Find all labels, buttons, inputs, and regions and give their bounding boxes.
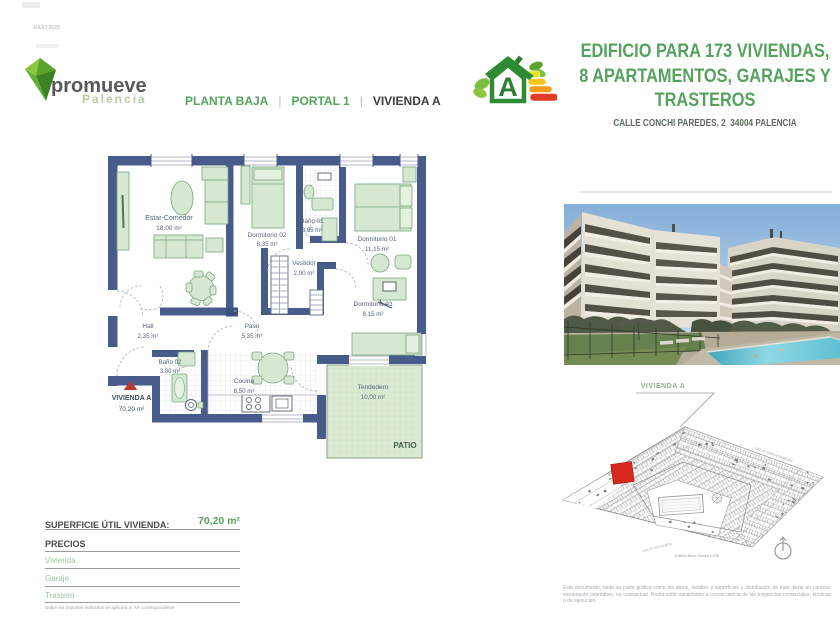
svg-text:70,20 m²: 70,20 m² bbox=[119, 406, 145, 413]
svg-text:8,50 m²: 8,50 m² bbox=[234, 388, 255, 395]
svg-text:VIVIENDA A: VIVIENDA A bbox=[112, 395, 152, 402]
svg-text:CALLE LOS OLMOS: CALLE LOS OLMOS bbox=[642, 542, 672, 553]
svg-text:Paso: Paso bbox=[245, 323, 260, 330]
svg-text:8,15 m²: 8,15 m² bbox=[363, 311, 384, 318]
svg-text:Tendedero: Tendedero bbox=[358, 384, 389, 391]
svg-text:10,00 m²: 10,00 m² bbox=[361, 394, 385, 401]
svg-text:2,00 m²: 2,00 m² bbox=[294, 270, 315, 277]
svg-text:Dormitorio 02: Dormitorio 02 bbox=[247, 232, 286, 239]
svg-text:Dormitorio 01: Dormitorio 01 bbox=[357, 236, 396, 243]
svg-text:A: A bbox=[498, 72, 518, 102]
svg-text:Dormitorio 03: Dormitorio 03 bbox=[353, 301, 392, 308]
svg-text:8,35 m²: 8,35 m² bbox=[257, 241, 278, 248]
svg-text:PATIO: PATIO bbox=[393, 441, 416, 450]
svg-text:Cocina: Cocina bbox=[234, 378, 255, 385]
svg-text:Baño 02: Baño 02 bbox=[158, 359, 182, 366]
svg-text:Vestidor: Vestidor bbox=[292, 260, 316, 267]
svg-text:18,00 m²: 18,00 m² bbox=[156, 225, 182, 232]
svg-text:Estar-Comedor: Estar-Comedor bbox=[145, 215, 193, 222]
svg-text:Hall: Hall bbox=[142, 323, 154, 330]
svg-text:2,35 m²: 2,35 m² bbox=[138, 333, 159, 340]
svg-text:Baño 01: Baño 01 bbox=[300, 218, 324, 225]
svg-text:3,00 m²: 3,00 m² bbox=[160, 369, 180, 375]
svg-text:3,95 m²: 3,95 m² bbox=[302, 228, 322, 234]
svg-text:Palencia: Palencia bbox=[82, 92, 147, 106]
svg-text:Edificio Nova. Escala 1:200: Edificio Nova. Escala 1:200 bbox=[675, 554, 719, 558]
svg-text:5,35 m²: 5,35 m² bbox=[242, 333, 263, 340]
svg-text:11,15 m²: 11,15 m² bbox=[365, 246, 389, 253]
